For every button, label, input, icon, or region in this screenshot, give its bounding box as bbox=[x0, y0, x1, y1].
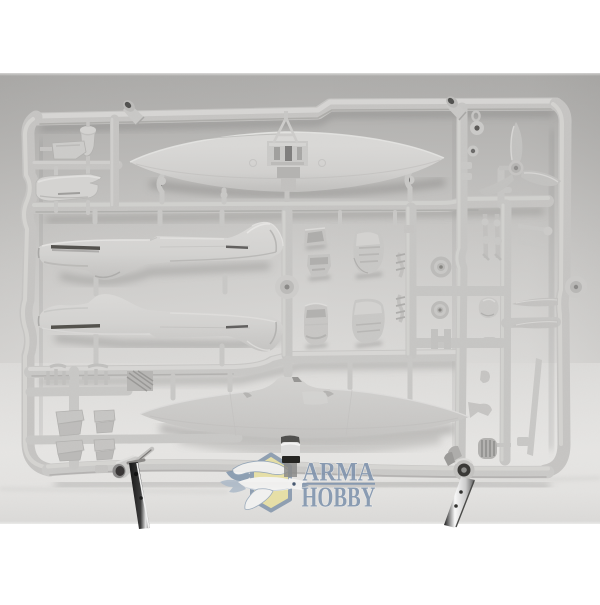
svg-text:HOBBY: HOBBY bbox=[302, 482, 376, 514]
